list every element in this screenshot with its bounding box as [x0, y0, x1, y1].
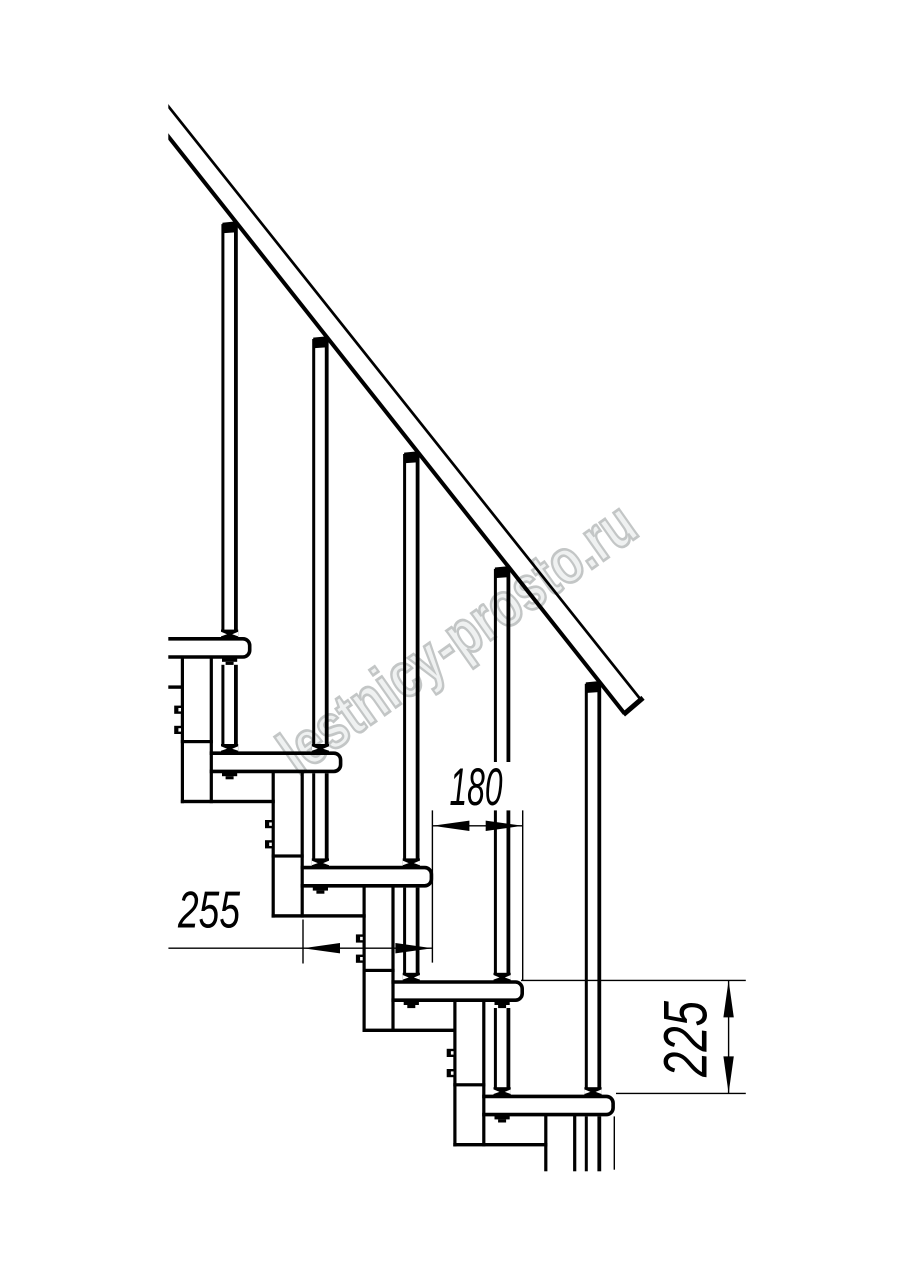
- svg-text:180: 180: [450, 758, 503, 817]
- svg-text:225: 225: [652, 1000, 720, 1078]
- svg-text:255: 255: [177, 882, 240, 940]
